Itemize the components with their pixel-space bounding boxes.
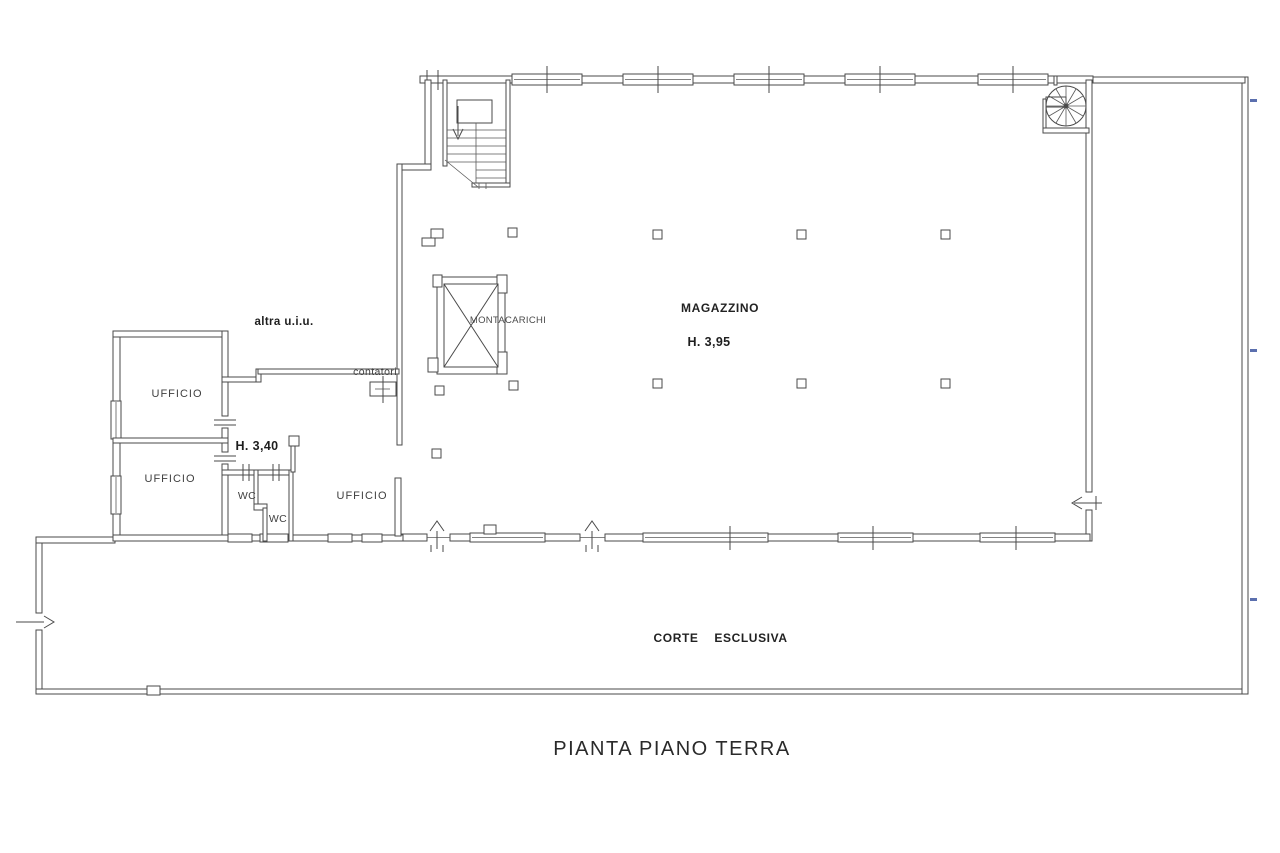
office-bottom-left-label: UFFICIO <box>145 473 196 485</box>
courtyard-bottom-pillar <box>147 686 160 695</box>
courtyard-left-wall-lower <box>36 630 42 693</box>
wc-bottom-label: WC <box>269 513 287 525</box>
elevator-tab-bl <box>428 358 438 372</box>
column <box>653 230 662 239</box>
column <box>435 386 444 395</box>
courtyard-label-word1: CORTE <box>654 631 699 645</box>
office-right-label: UFFICIO <box>337 490 388 502</box>
stairwell <box>443 80 510 189</box>
column-l-shape-a <box>431 229 443 238</box>
wc-top-label: WC <box>238 490 256 502</box>
blue-reference-marks <box>1250 99 1257 601</box>
meters-niche <box>370 376 396 403</box>
entry-door-arrow-2 <box>585 521 599 552</box>
column <box>653 379 662 388</box>
warehouse-right-wall-upper <box>1086 80 1092 492</box>
floor-plan-page: MAGAZZINO H. 3,95 MONTACARICHI UFFICIO U… <box>0 0 1280 853</box>
floor-plan-svg: MAGAZZINO H. 3,95 MONTACARICHI UFFICIO U… <box>0 0 1280 853</box>
office-inner-wall-seg1 <box>222 331 228 416</box>
spiral-top-stub-wall <box>1054 76 1057 85</box>
other-unit-annotation: altra u.i.u. <box>254 316 313 328</box>
elevator-tab-tl <box>433 275 442 287</box>
bottom-wall-pillar <box>484 525 496 534</box>
courtyard-walls <box>16 77 1248 695</box>
wc-right-wall <box>289 470 293 541</box>
courtyard-bottom-wall <box>36 689 1247 694</box>
warehouse-left-wall <box>397 164 402 445</box>
plan-title: PIANTA PIANO TERRA <box>553 738 790 760</box>
right-door-arrow <box>1072 496 1102 510</box>
wc-divider-upper <box>254 470 258 508</box>
stair-cut-line <box>445 160 478 187</box>
stairwell-left-wall <box>443 80 447 166</box>
courtyard-entrance-arrow <box>16 616 54 628</box>
entry-door-arrow-1 <box>430 521 444 552</box>
column <box>941 379 950 388</box>
column <box>797 379 806 388</box>
office-right-wall <box>395 478 401 536</box>
courtyard-label-word2: ESCLUSIVA <box>714 631 787 645</box>
spiral-landing <box>1046 97 1066 107</box>
office-bottom-wall <box>113 535 403 541</box>
courtyard-left-wall-upper <box>36 539 42 613</box>
stairwell-right-wall <box>506 80 510 187</box>
spiral-staircase <box>1043 76 1089 133</box>
warehouse-bottom-wall-seg1 <box>400 534 427 541</box>
office-block-walls <box>111 331 403 542</box>
column <box>941 230 950 239</box>
office-inner-wall-seg3 <box>222 464 228 541</box>
stair-landing <box>457 100 492 123</box>
column <box>797 230 806 239</box>
spiral-bottom-wall <box>1043 128 1089 133</box>
elevator-label: MONTACARICHI <box>470 315 546 326</box>
corridor-column-stub-wall <box>291 446 295 472</box>
wc-divider-lower <box>263 508 267 541</box>
courtyard-top-left-wall <box>36 537 115 543</box>
corridor-wall-low <box>222 377 260 382</box>
courtyard-right-wall <box>1242 77 1248 694</box>
column <box>509 381 518 390</box>
courtyard-top-right-wall <box>1092 77 1245 83</box>
office-top-left-label: UFFICIO <box>152 388 203 400</box>
column <box>432 449 441 458</box>
stair-treads-lower <box>476 170 506 178</box>
corridor-column <box>289 436 299 446</box>
warehouse-label: MAGAZZINO <box>681 301 759 315</box>
office-divider-wall <box>113 438 228 443</box>
meters-annotation: contatori <box>353 366 397 378</box>
column <box>508 228 517 237</box>
office-top-wall <box>113 331 228 337</box>
offices-height-note: H. 3,40 <box>235 439 278 453</box>
warehouse-left-upper-wall <box>425 80 431 168</box>
column-l-shape-b <box>422 238 435 246</box>
warehouse-height-note: H. 3,95 <box>687 335 730 349</box>
